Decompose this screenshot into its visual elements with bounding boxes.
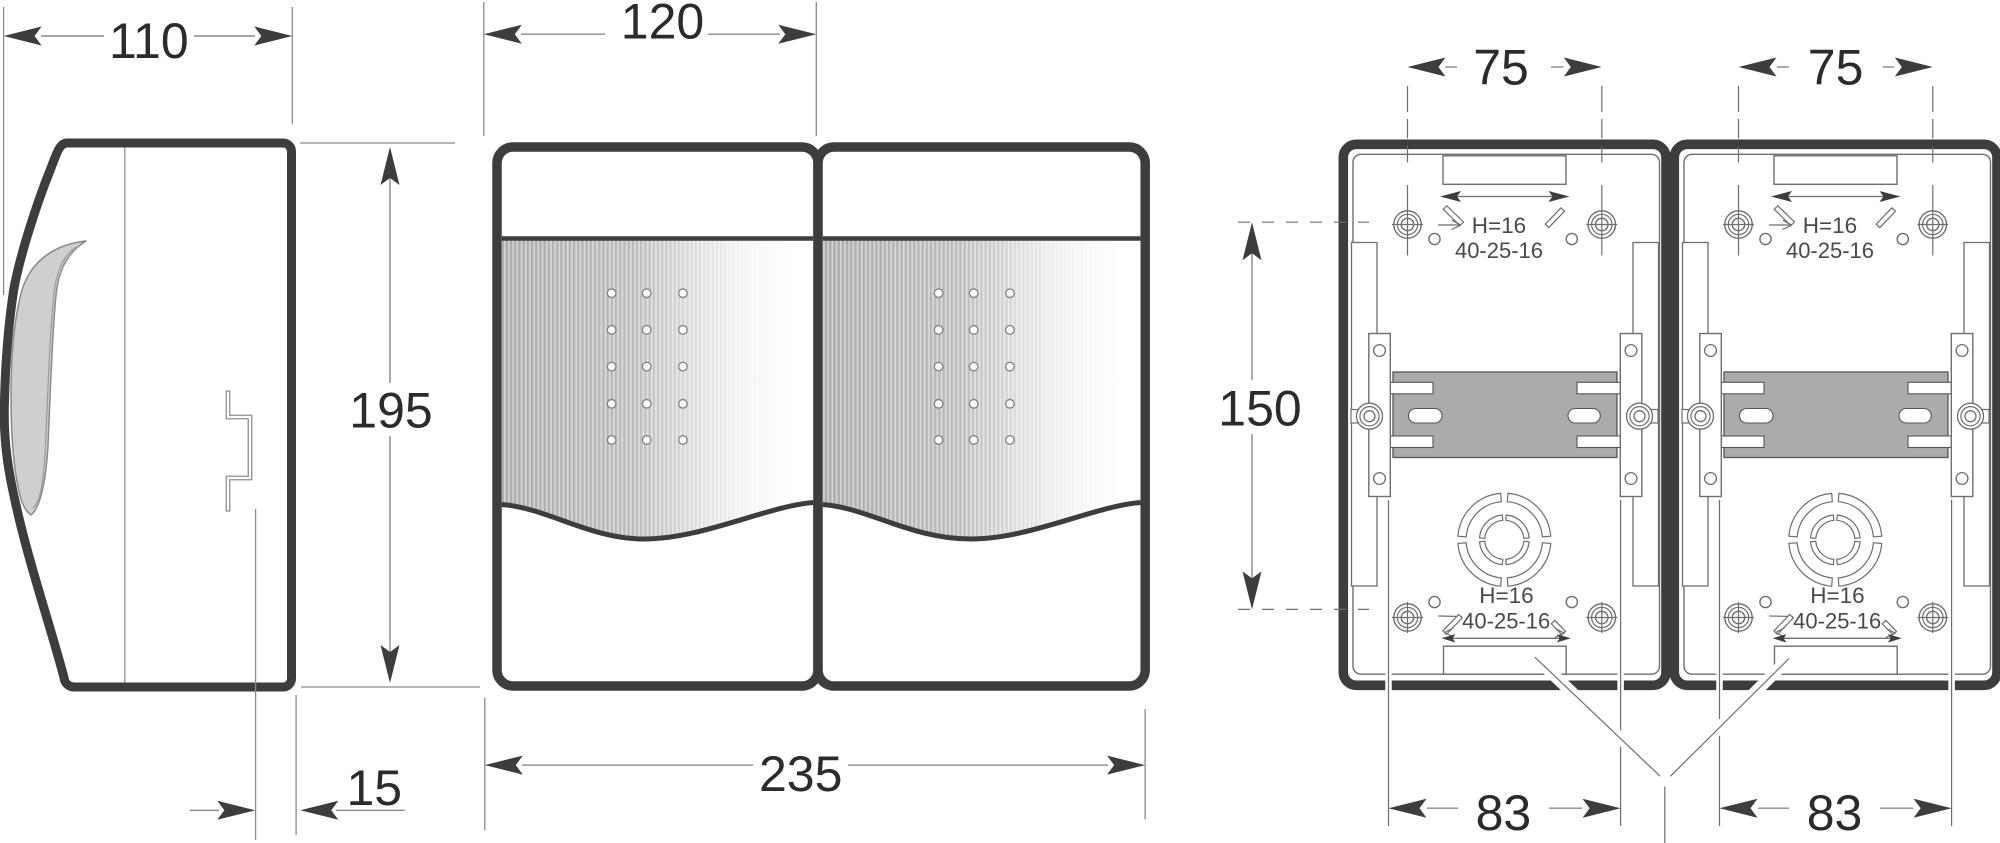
svg-text:75: 75 [1473, 40, 1529, 96]
svg-text:83: 83 [1807, 785, 1863, 841]
svg-text:H=16: H=16 [1472, 213, 1526, 238]
svg-text:150: 150 [1218, 381, 1301, 437]
svg-text:83: 83 [1476, 785, 1532, 841]
svg-text:15: 15 [346, 760, 402, 816]
svg-text:40-25-16: 40-25-16 [1455, 238, 1543, 263]
svg-text:40-25-16: 40-25-16 [1462, 609, 1550, 634]
svg-text:120: 120 [621, 0, 704, 50]
svg-text:195: 195 [349, 383, 432, 439]
svg-text:110: 110 [109, 13, 189, 69]
svg-text:H=16: H=16 [1479, 583, 1533, 608]
svg-text:235: 235 [759, 746, 842, 802]
svg-text:75: 75 [1808, 40, 1864, 96]
